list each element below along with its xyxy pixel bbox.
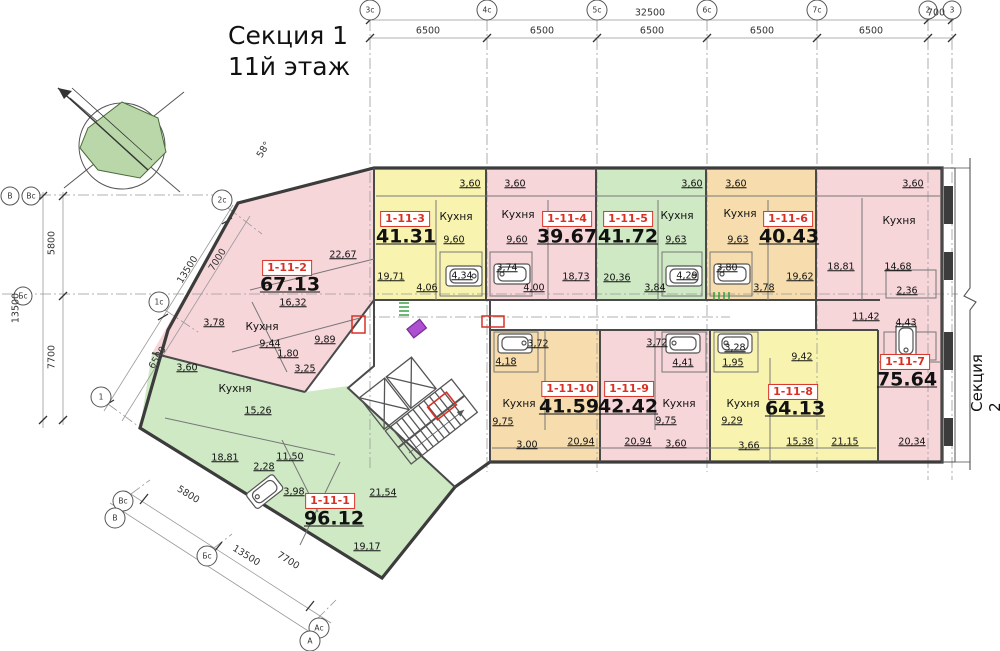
room-area: 3,84: [644, 283, 665, 293]
kitchen-label: Кухня: [218, 384, 251, 395]
room-area: 20,34: [898, 437, 925, 447]
room-area: 9,89: [314, 335, 335, 345]
room-area: 3,78: [203, 318, 224, 328]
kitchen-label: Кухня: [439, 212, 472, 223]
room-area: 9,60: [506, 235, 527, 245]
room-area: 2,36: [896, 286, 917, 296]
apartment-area: 41.59: [539, 398, 599, 417]
room-area: 11,42: [852, 312, 879, 322]
dim-total: 32500: [635, 8, 665, 18]
kitchen-label: Кухня: [662, 399, 695, 410]
dim-6500: 6500: [416, 26, 440, 36]
dim-13500-left: 13500: [11, 293, 21, 323]
dim-7700-left: 7700: [47, 345, 57, 369]
room-area: 15,26: [244, 406, 271, 416]
apartment-area: 40.43: [759, 228, 819, 247]
axis-label: 7с: [813, 6, 822, 15]
room-area: 19,71: [377, 272, 404, 282]
room-area: 2,28: [253, 462, 274, 472]
section-boundary: [942, 158, 976, 470]
room-area: 21,15: [831, 437, 858, 447]
room-area: 3,98: [283, 487, 304, 497]
room-area: 9,75: [655, 416, 676, 426]
axis-label: В: [7, 192, 12, 201]
room-area: 3,28: [724, 343, 745, 353]
room-area: 4,18: [495, 357, 516, 367]
room-area: 9,42: [791, 352, 812, 362]
room-area: 3,00: [516, 440, 537, 450]
axis-label: 1: [99, 393, 104, 402]
room-area: 16,32: [279, 298, 306, 308]
dim-6500: 6500: [859, 26, 883, 36]
room-area: 4,34: [451, 271, 472, 281]
apartment-area: 41.31: [376, 228, 436, 247]
page-title: Секция 1 11й этаж: [228, 20, 350, 83]
room-area: 3,60: [459, 179, 480, 189]
room-area: 4,29: [676, 271, 697, 281]
axis-label: Вс: [26, 192, 35, 201]
room-area: 14,68: [884, 262, 911, 272]
kitchen-label: Кухня: [726, 399, 759, 410]
room-area: 3,60: [504, 179, 525, 189]
room-area: 18,81: [211, 453, 238, 463]
room-area: 9,29: [721, 416, 742, 426]
room-area: 9,63: [727, 235, 748, 245]
room-area: 1,80: [277, 349, 298, 359]
dim-700: 700: [927, 8, 945, 18]
axis-label: А: [307, 637, 313, 646]
plan-title-line2: 11й этаж: [228, 51, 350, 82]
north-arrow-icon: [58, 88, 72, 99]
apartment-area: 41.72: [598, 228, 658, 247]
room-area: 9,60: [443, 235, 464, 245]
kitchen-label: Кухня: [882, 216, 915, 227]
room-area: 3,74: [496, 263, 517, 273]
axis-label: Ас: [314, 624, 323, 633]
kitchen-label: Кухня: [723, 209, 756, 220]
room-area: 3,66: [738, 441, 759, 451]
room-area: 4,43: [895, 318, 916, 328]
site-footprint: [80, 102, 166, 178]
apartment-area: 67.13: [260, 276, 320, 295]
axis-label: 1с: [155, 298, 164, 307]
dim-6500: 6500: [640, 26, 664, 36]
plan-title-line1: Секция 1: [228, 20, 350, 51]
kitchen-label: Кухня: [501, 210, 534, 221]
room-area: 19,62: [786, 272, 813, 282]
room-area: 21,54: [369, 488, 396, 498]
section2-label: Секция 2: [968, 354, 1000, 412]
axis-label: 3с: [366, 6, 375, 15]
room-area: 22,67: [329, 250, 356, 260]
room-area: 11,50: [276, 452, 303, 462]
room-area: 19,17: [353, 542, 380, 552]
room-area: 3,60: [665, 439, 686, 449]
kitchen-label: Кухня: [660, 211, 693, 222]
dim-5800-left: 5800: [47, 231, 57, 255]
room-area: 3,78: [753, 283, 774, 293]
room-area: 3,72: [527, 339, 548, 349]
room-area: 4,41: [672, 358, 693, 368]
room-area: 3,25: [294, 364, 315, 374]
apartment-area: 39.67: [537, 228, 597, 247]
apartment-area: 96.12: [304, 510, 364, 529]
room-area: 3,72: [646, 338, 667, 348]
room-area: 3,60: [681, 179, 702, 189]
room-area: 9,75: [492, 417, 513, 427]
room-area: 20,94: [567, 437, 594, 447]
axis-label: 5с: [593, 6, 602, 15]
dim-6500: 6500: [530, 26, 554, 36]
room-area: 20,36: [603, 273, 630, 283]
room-area: 3,80: [716, 263, 737, 273]
room-area: 18,73: [562, 272, 589, 282]
room-area: 9,63: [665, 235, 686, 245]
room-area: 20,94: [624, 437, 651, 447]
axis-label: 4с: [483, 6, 492, 15]
axis-label: В: [112, 514, 117, 523]
apartment-area: 75.64: [877, 371, 937, 390]
north-site-symbol: [58, 88, 184, 192]
kitchen-label: Кухня: [245, 322, 278, 333]
kitchen-label: Кухня: [502, 399, 535, 410]
apartment-area: 64.13: [765, 400, 825, 419]
room-area: 4,06: [416, 283, 437, 293]
floor-plan: 3с 4с 5с 6с 7с 2 3 В Вс Бс 2с 1с 1 Вс В …: [0, 0, 1000, 651]
room-area: 1,95: [722, 358, 743, 368]
room-area: 4,00: [523, 283, 544, 293]
room-area: 15,38: [786, 437, 813, 447]
room-area: 3,60: [902, 179, 923, 189]
axis-label: Вс: [118, 497, 127, 506]
axis-label: 2с: [218, 196, 227, 205]
apartment-area: 42.42: [598, 398, 658, 417]
plan-drawing: 3с 4с 5с 6с 7с 2 3 В Вс Бс 2с 1с 1 Вс В …: [0, 0, 1000, 651]
dim-6500: 6500: [750, 26, 774, 36]
axis-label: 3: [950, 6, 955, 15]
room-area: 18,81: [827, 262, 854, 272]
room-area: 3,60: [725, 179, 746, 189]
room-area: 3,60: [176, 363, 197, 373]
axis-label: Бс: [202, 552, 211, 561]
axis-label: 6с: [703, 6, 712, 15]
